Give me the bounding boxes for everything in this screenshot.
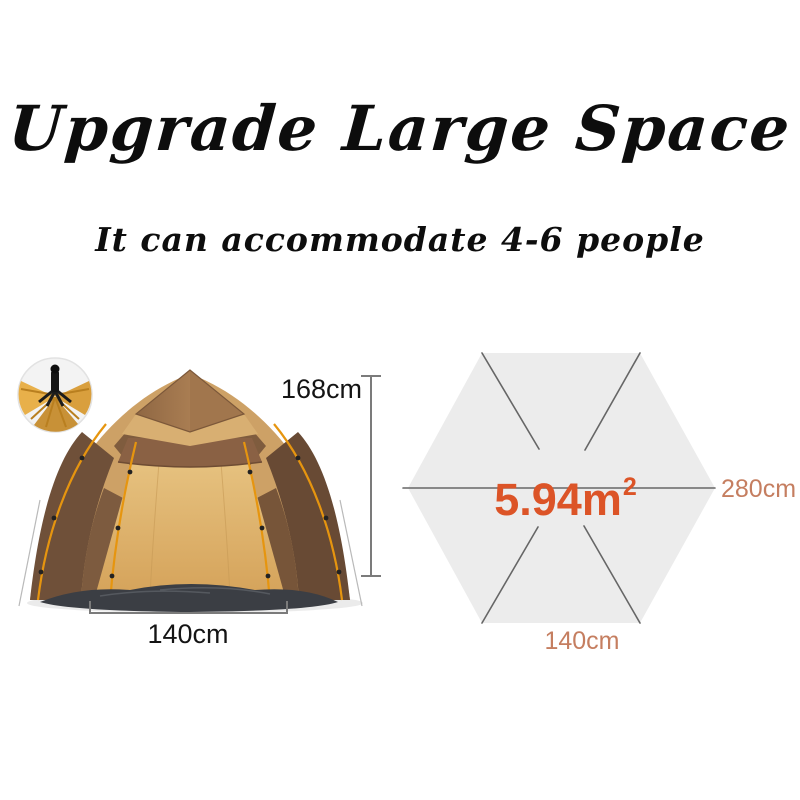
height-dimension-cap-top [361, 375, 381, 377]
floor-area-value: 5.94m [494, 474, 622, 525]
subtitle: It can accommodate 4-6 people [0, 220, 800, 259]
floor-width-label: 280cm [721, 475, 796, 504]
tent-height-label: 168cm [278, 374, 362, 405]
floor-area-superscript: 2 [623, 473, 637, 501]
width-dimension-tick-right [286, 601, 288, 614]
height-dimension-line [370, 376, 372, 576]
floor-edge-label: 140cm [527, 627, 637, 656]
width-dimension-line [89, 612, 288, 614]
page-title: Upgrade Large Space [0, 92, 800, 165]
tent-width-label: 140cm [123, 619, 253, 650]
floor-area-label: 5.94m2 [445, 477, 685, 522]
product-infographic: Upgrade Large Space It can accommodate 4… [0, 0, 800, 800]
width-dimension-tick-left [89, 601, 91, 614]
pole-hub-inset-icon [18, 358, 92, 432]
height-dimension-cap-bottom [361, 575, 381, 577]
